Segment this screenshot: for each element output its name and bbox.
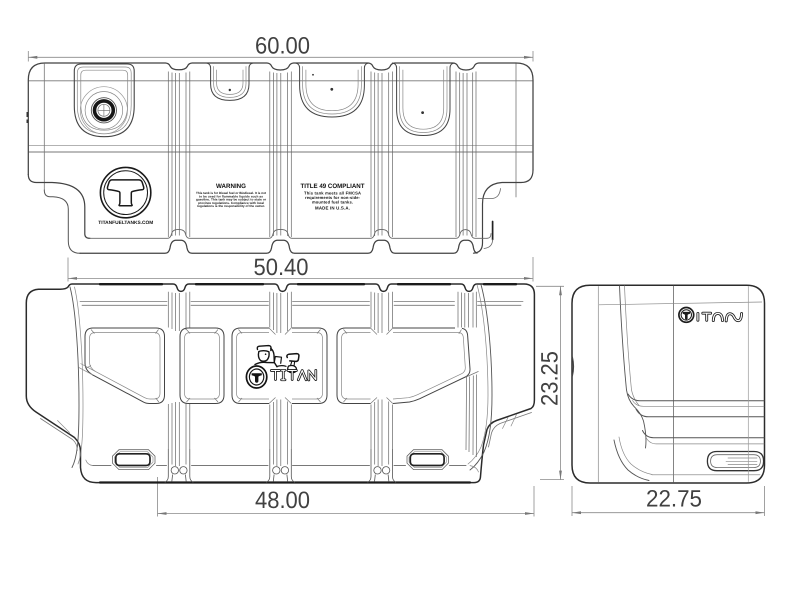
svg-text:WARNING: WARNING — [216, 183, 246, 190]
svg-text:22.75: 22.75 — [646, 486, 702, 512]
svg-text:MADE IN U.S.A.: MADE IN U.S.A. — [315, 206, 350, 211]
svg-text:mounted fuel tanks.: mounted fuel tanks. — [312, 200, 353, 205]
svg-text:23.25: 23.25 — [538, 351, 564, 406]
svg-text:regulations is the responsibil: regulations is the responsibility of the… — [197, 204, 265, 208]
svg-text:60.00: 60.00 — [255, 34, 310, 60]
svg-text:TITANFUELTANKS.COM: TITANFUELTANKS.COM — [98, 220, 153, 226]
svg-text:TITLE 49 COMPLIANT: TITLE 49 COMPLIANT — [301, 183, 365, 190]
svg-text:50.40: 50.40 — [254, 255, 309, 281]
svg-text:48.00: 48.00 — [255, 488, 310, 514]
